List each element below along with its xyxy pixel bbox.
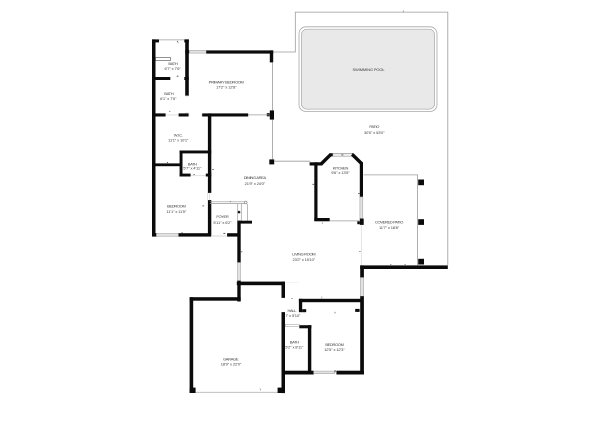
svg-text:6'7" x 7'6": 6'7" x 7'6"	[165, 66, 182, 71]
svg-text:9'6" x 13'5": 9'6" x 13'5"	[331, 170, 350, 175]
svg-text:5'11" x 6'2": 5'11" x 6'2"	[213, 220, 232, 225]
svg-text:5'7" x 4'11": 5'7" x 4'11"	[183, 166, 202, 171]
svg-text:17'2" x 12'8": 17'2" x 12'8"	[216, 84, 237, 89]
svg-text:DINING AREA: DINING AREA	[244, 175, 267, 180]
svg-text:6'1" x 7'5": 6'1" x 7'5"	[160, 96, 177, 101]
svg-text:11'1" x 10'1": 11'1" x 10'1"	[168, 138, 189, 143]
svg-text:23'2" x 15'10": 23'2" x 15'10"	[293, 257, 316, 262]
svg-text:7' x 5'10": 7' x 5'10"	[285, 313, 301, 318]
svg-text:11'7" x 18'8": 11'7" x 18'8"	[379, 225, 400, 230]
svg-text:30'0" x 53'0": 30'0" x 53'0"	[364, 130, 385, 135]
svg-text:BEDROOM: BEDROOM	[167, 204, 185, 209]
svg-text:12'5" x 12'3": 12'5" x 12'3"	[324, 347, 345, 352]
svg-text:FOYER: FOYER	[216, 214, 229, 219]
svg-text:LIVING ROOM: LIVING ROOM	[292, 252, 315, 257]
svg-text:5'2" x 8'11": 5'2" x 8'11"	[285, 344, 304, 349]
svg-text:21'9" x 24'0": 21'9" x 24'0"	[245, 181, 266, 186]
svg-text:PATIO: PATIO	[369, 124, 379, 129]
svg-text:18'9" x 22'0": 18'9" x 22'0"	[221, 361, 242, 366]
svg-text:SWIMMING POOL: SWIMMING POOL	[353, 67, 386, 72]
svg-text:11'1" x 11'5": 11'1" x 11'5"	[166, 209, 186, 214]
svg-text:COVERED PATIO: COVERED PATIO	[375, 220, 403, 225]
